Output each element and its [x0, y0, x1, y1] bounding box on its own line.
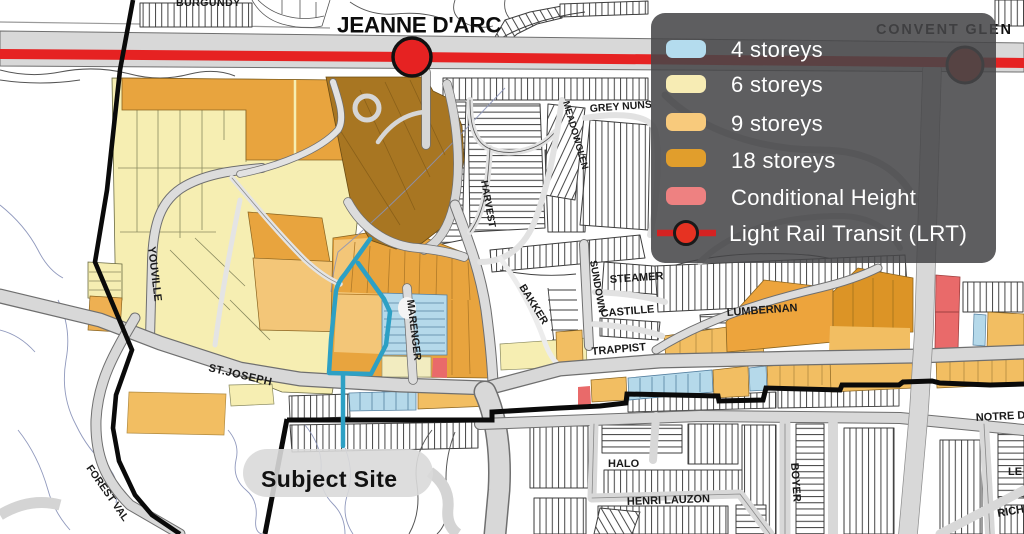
svg-text:Light Rail Transit (LRT): Light Rail Transit (LRT) — [729, 221, 967, 246]
svg-text:JEANNE D'ARC: JEANNE D'ARC — [337, 13, 501, 38]
svg-text:9 storeys: 9 storeys — [731, 111, 823, 136]
svg-text:Conditional Height: Conditional Height — [731, 185, 916, 210]
svg-text:BURGUNDY: BURGUNDY — [176, 0, 241, 9]
svg-text:18 storeys: 18 storeys — [731, 148, 836, 173]
svg-text:4 storeys: 4 storeys — [731, 37, 823, 62]
svg-text:NOTRE D: NOTRE D — [976, 409, 1024, 424]
svg-text:6 storeys: 6 storeys — [731, 72, 823, 97]
svg-text:LE: LE — [1008, 466, 1022, 478]
svg-text:Subject Site: Subject Site — [261, 466, 397, 492]
svg-text:HALO: HALO — [608, 458, 640, 470]
